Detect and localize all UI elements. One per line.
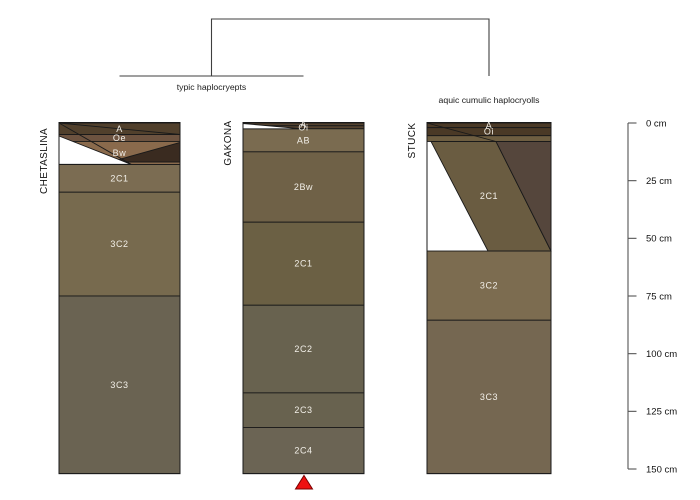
depth-axis-tick-label: 125 cm (646, 407, 677, 418)
horizon-label-gakona-2c3: 2C3 (294, 405, 312, 415)
horizon-label-gakona-2c4: 2C4 (294, 446, 312, 456)
gakona-marker-triangle-icon (296, 476, 313, 490)
horizon-label-gakona-oi: Oi (298, 122, 308, 132)
horizon-label-chetaslina-bw: Bw (113, 148, 127, 158)
horizon-label-chetaslina-oe: Oe (113, 133, 126, 143)
depth-axis-tick-label: 75 cm (646, 291, 672, 302)
figure-canvas: typic haplocryepts aquic cumulic haplocr… (0, 0, 700, 500)
horizon-label-stuck-3c2: 3C2 (480, 281, 498, 291)
depth-axis-tick-label: 150 cm (646, 464, 677, 475)
horizon-label-stuck-oi: Oi (484, 127, 494, 137)
profile-id-label-chetaslina: CHETASLINA (39, 128, 50, 194)
horizon-label-stuck-3c3: 3C3 (480, 392, 498, 402)
profile-id-label-gakona: GAKONA (223, 120, 234, 165)
dendrogram-group-label-aquic-cumulic-haplocryolls: aquic cumulic haplocryolls (439, 95, 541, 105)
horizon-label-chetaslina-2c1: 2C1 (110, 173, 128, 183)
horizon-label-chetaslina-3c2: 3C2 (110, 239, 128, 249)
soil-profile-figure: typic haplocryepts aquic cumulic haplocr… (0, 0, 700, 500)
depth-axis: 0 cm25 cm50 cm75 cm100 cm125 cm150 cm (628, 118, 677, 475)
horizon-label-stuck-2c1: 2C1 (480, 191, 498, 201)
horizon-label-gakona-2bw: 2Bw (294, 182, 313, 192)
depth-axis-tick-label: 50 cm (646, 234, 672, 245)
profile-id-label-stuck: STUCK (407, 123, 418, 159)
dendrogram-lines (120, 19, 490, 76)
depth-axis-tick-label: 100 cm (646, 349, 677, 360)
depth-axis-tick-label: 0 cm (646, 118, 667, 129)
horizon-label-chetaslina-3c3: 3C3 (110, 380, 128, 390)
horizon-label-gakona-ab: AB (297, 135, 310, 145)
depth-axis-tick-label: 25 cm (646, 176, 672, 187)
dendrogram: typic haplocryepts aquic cumulic haplocr… (120, 19, 541, 105)
dendrogram-group-label-typic-haplocryepts: typic haplocryepts (177, 82, 247, 92)
horizon-label-gakona-2c1: 2C1 (294, 259, 312, 269)
horizon-label-gakona-2c2: 2C2 (294, 344, 312, 354)
